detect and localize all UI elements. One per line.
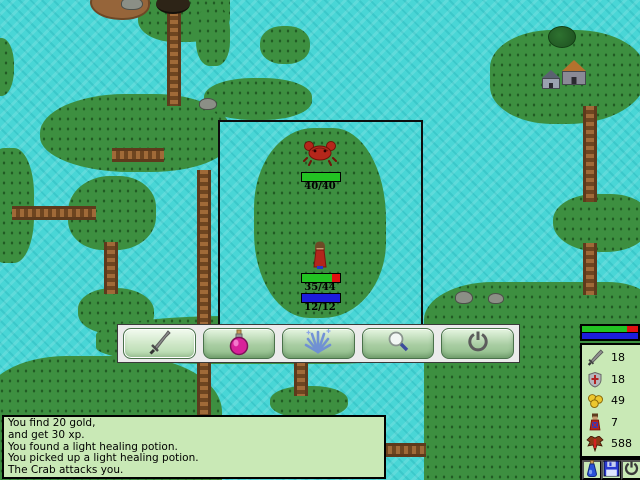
status-hp-bar [582,326,638,332]
search-magnifier-icon [385,329,411,358]
stat-defense: 18 [586,369,640,391]
gold-coins-icon [586,392,604,409]
player-mp-label: 12/12 [290,302,350,313]
player-hp-fill [302,274,332,282]
island [204,78,312,120]
bridge [104,242,118,294]
gold-value: 49 [611,394,625,407]
bridge [197,170,211,324]
rock [121,0,143,10]
status-mp-fill [582,333,638,339]
attack-value: 18 [611,351,625,364]
stat-attack: 18 [586,347,640,369]
bridge [583,243,597,295]
player-mp-fill [302,294,340,302]
stat-gold: 49 [586,390,640,412]
status-bars [580,324,640,341]
quit-button[interactable] [441,328,514,359]
player-hp-label: 35/44 [290,282,350,293]
island [270,386,348,418]
sword-icon [586,349,604,366]
bridge [197,362,211,418]
log-line: and get 30 xp. [8,430,380,442]
stat-xp: 588 [586,433,640,455]
tree-bush [548,26,576,48]
action-toolbar [117,324,520,363]
power-icon [623,460,640,480]
battle-window: 40/40 35/44 12/12 [218,120,423,326]
healing-potion-icon [227,329,251,359]
log-line: The Crab attacks you. [8,465,380,477]
island [0,38,14,96]
sword-attack-icon [146,329,172,358]
save-button[interactable] [601,460,621,480]
attack-button[interactable] [123,328,196,359]
message-log: You find 20 gold, and get 30 xp. You fou… [2,415,386,479]
island [196,6,230,66]
player-sprite [310,240,330,274]
monster-xp-icon [586,436,604,452]
enemy-hp-label: 40/40 [290,181,350,192]
enemy-crab-sprite[interactable] [302,138,338,170]
status-hp-fill [582,326,627,332]
game-map[interactable]: 40/40 35/44 12/12 [0,0,640,480]
power-button[interactable] [621,460,640,480]
level-value: 7 [611,416,618,429]
shield-icon [586,371,604,388]
magic-button[interactable] [282,328,355,359]
power-quit-icon [465,329,491,358]
bridge [12,206,96,220]
rock [455,291,473,304]
rock [488,293,504,304]
panel-buttons [580,458,640,480]
bridge [167,12,181,106]
save-disk-icon [603,460,620,480]
character-icon [586,413,604,431]
bridge [294,362,308,396]
stats-panel: 18 18 49 [580,343,640,458]
use-potion-button[interactable] [582,460,601,480]
large-house [562,60,586,85]
bridge [112,148,164,162]
potion-button[interactable] [203,328,276,359]
status-mp-bar [582,333,638,339]
magic-spell-icon [303,329,333,358]
bridge [583,106,597,202]
island [260,26,310,64]
xp-value: 588 [611,437,632,450]
search-button[interactable] [362,328,435,359]
stat-level: 7 [586,412,640,434]
defense-value: 18 [611,373,625,386]
potion-icon [585,460,599,480]
rock [199,98,217,110]
enemy-hp-fill [302,173,340,181]
small-house [542,70,560,89]
